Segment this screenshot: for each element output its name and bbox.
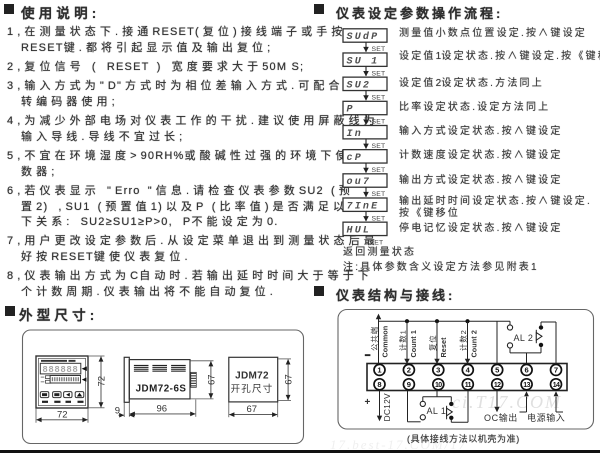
svg-text:电源输入: 电源输入 — [527, 412, 565, 423]
svg-text:计数1: 计数1 — [398, 329, 408, 351]
svg-text:计数2: 计数2 — [458, 329, 468, 351]
svg-text:复位: 复位 — [428, 334, 438, 351]
svg-text:2: 2 — [407, 366, 411, 375]
svg-text:Reset: Reset — [439, 337, 448, 358]
svg-text:公共端: 公共端 — [369, 326, 379, 351]
svg-text:13: 13 — [523, 382, 530, 389]
svg-text:AL 2: AL 2 — [514, 333, 534, 343]
svg-text:Common: Common — [381, 326, 390, 358]
svg-text:Count 1: Count 1 — [409, 330, 418, 357]
svg-text:14: 14 — [553, 382, 560, 389]
svg-text:DC12V: DC12V — [382, 393, 392, 422]
svg-text:8: 8 — [377, 380, 381, 389]
svg-text:7: 7 — [554, 366, 558, 375]
svg-text:6: 6 — [524, 366, 528, 375]
svg-text:+: + — [365, 397, 371, 408]
svg-text:OC输出: OC输出 — [484, 412, 518, 423]
svg-text:11: 11 — [465, 382, 472, 389]
svg-text:9: 9 — [407, 380, 411, 389]
svg-text:3: 3 — [436, 366, 440, 375]
svg-text:10: 10 — [435, 382, 442, 389]
svg-text:AL 1: AL 1 — [427, 406, 447, 416]
svg-text:Count 2: Count 2 — [470, 330, 479, 357]
svg-text:12: 12 — [494, 382, 501, 389]
